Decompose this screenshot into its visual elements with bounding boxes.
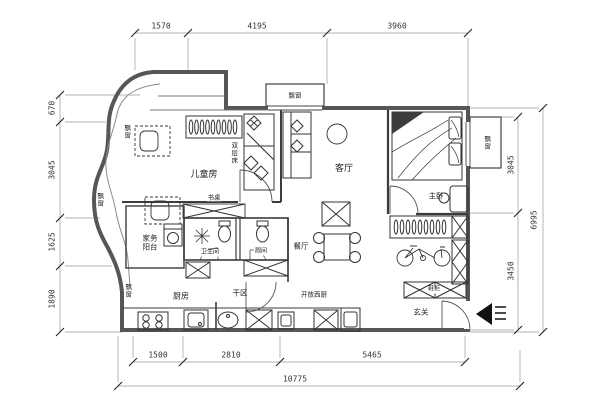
children-wardrobe bbox=[186, 116, 242, 138]
dim-bottom-3: 5465 bbox=[362, 351, 381, 360]
room-label-entry: 玄关 bbox=[414, 309, 429, 318]
floor-plan-page: 儿童房 客厅 主卧 餐厅 厨房 干区 玄关 家务阳台 卫生间 厕间 开放西厨 书… bbox=[0, 0, 600, 408]
room-label-dry-area: 干区 bbox=[233, 290, 248, 299]
dim-left-1: 670 bbox=[48, 101, 57, 115]
room-label-bathroom: 卫生间 bbox=[200, 250, 220, 257]
room-label-master: 主卧 bbox=[429, 193, 444, 202]
room-label-laundry: 家务阳台 bbox=[141, 234, 159, 251]
label-bay-window-left-2: 飘窗 bbox=[95, 193, 102, 208]
tall-cabinet bbox=[452, 240, 468, 284]
bunk-bed bbox=[244, 114, 274, 190]
dim-left-4: 1890 bbox=[48, 289, 57, 308]
dry-area-door bbox=[246, 282, 276, 312]
dimension-ticks bbox=[56, 29, 547, 390]
label-desk: 书桌 bbox=[207, 194, 222, 201]
room-label-toilet: 厕间 bbox=[254, 249, 268, 256]
children-desk bbox=[135, 126, 170, 156]
dim-right-1: 3045 bbox=[507, 155, 516, 174]
doors bbox=[240, 170, 418, 312]
dim-left-2: 3045 bbox=[48, 160, 57, 179]
room-label-kitchen: 厨房 bbox=[173, 291, 189, 300]
label-bunk-bed: 双层床 bbox=[229, 142, 236, 165]
dim-top-3: 3960 bbox=[387, 22, 406, 31]
dim-top-2: 4195 bbox=[247, 22, 266, 31]
label-shoe-cabinet: 鞋柜 bbox=[427, 287, 441, 294]
master-bedroom-door bbox=[390, 186, 418, 214]
label-bay-window-top: 飘窗 bbox=[289, 92, 302, 99]
dining-table bbox=[324, 234, 350, 260]
room-label-dining: 餐厅 bbox=[294, 243, 309, 252]
room-label-children: 儿童房 bbox=[190, 170, 217, 180]
dim-bottom-2: 2810 bbox=[221, 351, 240, 360]
double-bed bbox=[392, 112, 462, 180]
dim-top-1: 1570 bbox=[151, 22, 170, 31]
shower-symbol bbox=[194, 228, 210, 244]
dining-set bbox=[314, 202, 361, 263]
dim-bottom-1: 1500 bbox=[148, 351, 167, 360]
bicycle bbox=[397, 246, 450, 266]
dim-right-2: 3450 bbox=[507, 261, 516, 280]
entrance-arrow bbox=[476, 303, 506, 325]
entry-door bbox=[442, 301, 473, 329]
floor-plan-drawing bbox=[0, 0, 600, 408]
label-bay-window-left-1: 飘窗 bbox=[122, 125, 129, 140]
room-label-open-kitchen: 开放西厨 bbox=[301, 291, 327, 298]
room-label-living: 客厅 bbox=[335, 164, 353, 174]
label-bay-window-right: 飘窗 bbox=[482, 136, 489, 151]
dim-bottom-total: 10775 bbox=[283, 375, 307, 384]
dim-right-total: 6995 bbox=[530, 210, 539, 229]
hall-closet bbox=[390, 216, 468, 238]
label-bay-window-left-3: 飘窗 bbox=[123, 284, 130, 299]
side-table bbox=[327, 124, 347, 144]
stove bbox=[138, 312, 168, 330]
sofa bbox=[283, 112, 311, 178]
dim-left-3: 1625 bbox=[48, 232, 57, 251]
